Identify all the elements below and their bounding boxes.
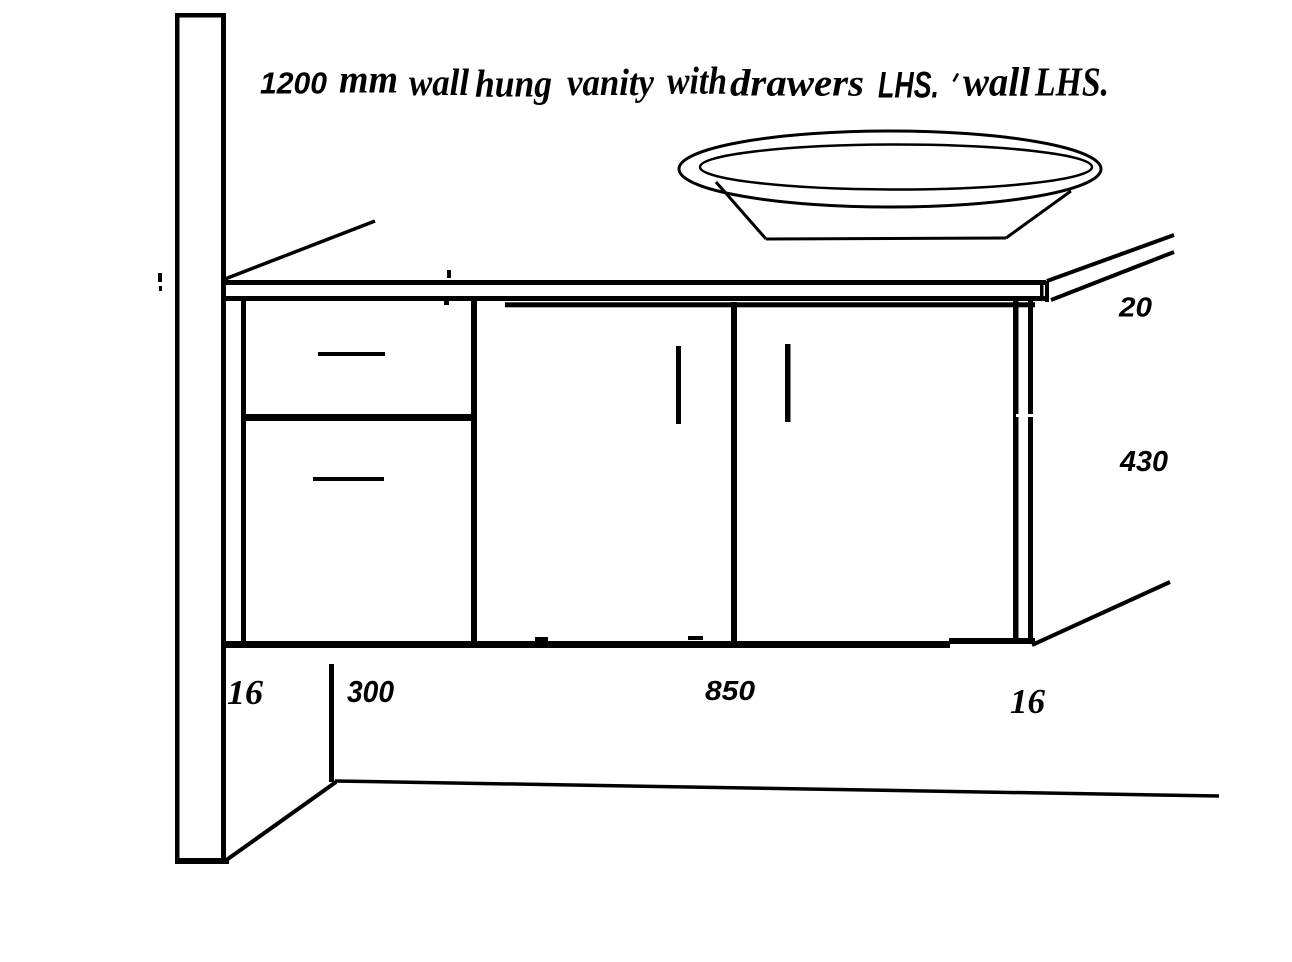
svg-text:430: 430: [1119, 446, 1168, 478]
svg-text:850: 850: [705, 675, 755, 706]
svg-text:16: 16: [1010, 682, 1046, 721]
svg-text:drawers: drawers: [730, 63, 864, 105]
svg-text:vanity: vanity: [567, 62, 654, 104]
svg-text:LHS.: LHS.: [1034, 59, 1109, 105]
svg-text:with: with: [667, 60, 727, 103]
svg-text:300: 300: [347, 674, 394, 709]
svg-text:wall: wall: [409, 62, 469, 104]
svg-text:mm: mm: [339, 57, 398, 102]
svg-text:20: 20: [1118, 292, 1152, 323]
svg-text:wall: wall: [963, 59, 1031, 105]
svg-text:1200: 1200: [260, 66, 327, 101]
svg-text:LHS.: LHS.: [878, 65, 939, 106]
svg-text:hung: hung: [475, 63, 552, 106]
svg-text:16: 16: [227, 673, 264, 712]
